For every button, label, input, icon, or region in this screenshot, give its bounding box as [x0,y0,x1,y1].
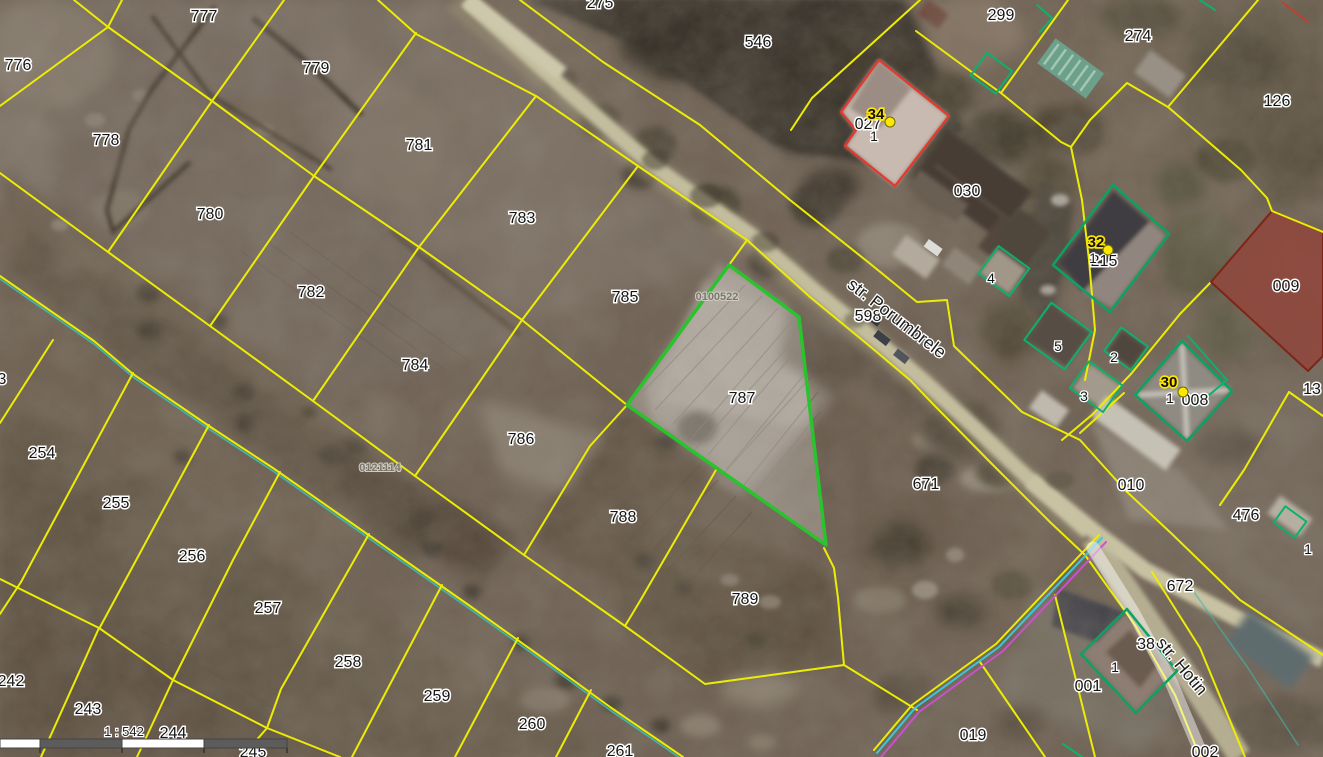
svg-text:030: 030 [954,183,981,200]
svg-text:001: 001 [1075,678,1102,695]
svg-text:0100522: 0100522 [696,291,739,303]
svg-text:38: 38 [1137,636,1155,653]
svg-text:778: 778 [93,132,120,149]
svg-text:3: 3 [1080,388,1088,404]
svg-text:1: 1 [1111,659,1119,675]
svg-text:299: 299 [988,7,1015,24]
svg-text:1: 1 [1089,250,1097,266]
svg-text:254: 254 [29,445,56,462]
svg-text:126: 126 [1264,93,1291,110]
svg-text:257: 257 [255,600,282,617]
svg-text:546: 546 [745,34,772,51]
svg-text:2: 2 [1110,349,1118,365]
svg-text:783: 783 [509,210,536,227]
svg-text:777: 777 [191,8,218,25]
svg-text:788: 788 [610,509,637,526]
svg-text:780: 780 [197,206,224,223]
svg-text:4: 4 [987,270,995,286]
svg-text:32: 32 [1088,234,1105,251]
svg-text:242: 242 [0,673,24,690]
svg-text:787: 787 [729,390,756,407]
svg-text:256: 256 [179,548,206,565]
svg-text:255: 255 [103,495,130,512]
svg-text:258: 258 [335,654,362,671]
svg-text:13: 13 [1303,381,1321,398]
svg-text:010: 010 [1118,477,1145,494]
svg-text:672: 672 [1167,578,1194,595]
svg-text:009: 009 [1273,278,1300,295]
svg-text:243: 243 [75,701,102,718]
svg-text:1 : 542: 1 : 542 [104,724,144,739]
svg-text:002: 002 [1192,744,1219,757]
svg-text:5: 5 [1054,338,1062,354]
svg-text:779: 779 [303,60,330,77]
svg-text:30: 30 [1161,374,1178,391]
svg-text:1: 1 [1166,390,1174,406]
svg-text:1: 1 [870,128,878,144]
svg-text:260: 260 [519,716,546,733]
svg-text:1: 1 [1304,541,1312,557]
svg-text:259: 259 [424,688,451,705]
svg-text:671: 671 [913,476,940,493]
svg-text:785: 785 [612,289,639,306]
svg-text:776: 776 [5,57,32,74]
svg-text:261: 261 [607,743,634,757]
svg-text:782: 782 [298,284,325,301]
svg-text:275: 275 [587,0,614,12]
svg-text:019: 019 [960,727,987,744]
svg-text:784: 784 [402,357,429,374]
svg-text:0121114: 0121114 [359,462,401,474]
svg-text:3: 3 [0,371,7,388]
svg-text:34: 34 [868,106,885,123]
svg-text:476: 476 [1233,507,1260,524]
svg-text:274: 274 [1125,28,1152,45]
svg-text:789: 789 [732,591,759,608]
svg-text:781: 781 [406,137,433,154]
svg-text:786: 786 [508,431,535,448]
